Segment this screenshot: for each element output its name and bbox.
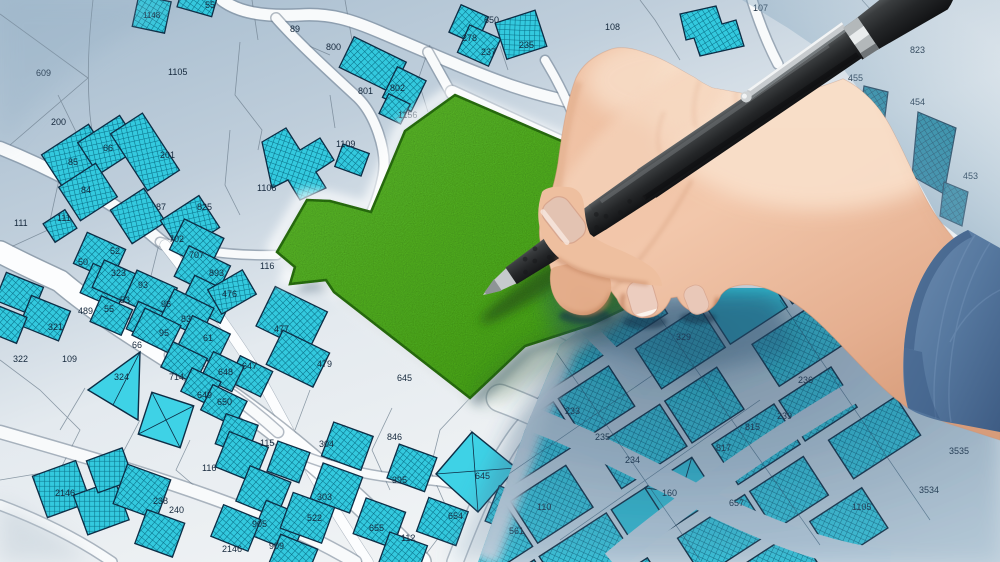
svg-text:83: 83: [181, 314, 191, 324]
svg-text:2146: 2146: [222, 544, 242, 554]
svg-text:96: 96: [161, 299, 171, 309]
svg-text:825: 825: [197, 202, 212, 212]
svg-text:476: 476: [222, 289, 237, 299]
svg-text:323: 323: [111, 268, 126, 278]
svg-text:802: 802: [390, 83, 405, 93]
svg-text:111: 111: [14, 218, 28, 228]
svg-text:321: 321: [48, 322, 63, 332]
svg-text:714: 714: [169, 372, 184, 382]
svg-text:109: 109: [62, 354, 77, 364]
svg-text:85: 85: [68, 157, 78, 167]
svg-text:201: 201: [160, 150, 175, 160]
svg-text:55: 55: [205, 0, 215, 10]
svg-text:93: 93: [138, 280, 148, 290]
svg-text:801: 801: [358, 86, 373, 96]
svg-text:112: 112: [401, 533, 415, 543]
svg-text:87: 87: [156, 202, 166, 212]
svg-text:645: 645: [397, 373, 412, 383]
svg-text:240: 240: [169, 505, 184, 515]
svg-text:489: 489: [78, 306, 93, 316]
svg-text:116: 116: [202, 463, 216, 473]
svg-text:66: 66: [132, 340, 142, 350]
svg-text:89: 89: [290, 24, 300, 34]
svg-text:893: 893: [209, 268, 224, 278]
svg-text:235: 235: [519, 40, 534, 50]
svg-text:655: 655: [369, 523, 384, 533]
svg-text:303: 303: [317, 492, 332, 502]
svg-text:707: 707: [189, 250, 204, 260]
svg-text:84: 84: [81, 185, 91, 195]
svg-text:648: 648: [218, 367, 233, 377]
svg-text:200: 200: [51, 117, 66, 127]
svg-text:702: 702: [169, 234, 184, 244]
svg-text:61: 61: [203, 333, 213, 343]
svg-text:2146: 2146: [55, 488, 75, 498]
svg-text:649: 649: [197, 390, 212, 400]
svg-text:278: 278: [462, 33, 477, 43]
svg-text:522: 522: [307, 513, 322, 523]
svg-text:909: 909: [269, 541, 284, 551]
svg-text:846: 846: [387, 432, 402, 442]
svg-text:479: 479: [317, 359, 332, 369]
svg-text:395: 395: [392, 475, 407, 485]
svg-text:115: 115: [260, 438, 274, 448]
svg-text:650: 650: [484, 15, 499, 25]
svg-text:322: 322: [13, 354, 28, 364]
svg-text:55: 55: [104, 304, 114, 314]
svg-text:53: 53: [120, 295, 130, 305]
svg-text:108: 108: [605, 22, 620, 32]
svg-text:238: 238: [153, 496, 168, 506]
svg-text:1106: 1106: [257, 183, 276, 193]
svg-text:304: 304: [319, 439, 334, 449]
svg-text:654: 654: [448, 511, 463, 521]
svg-text:66: 66: [103, 143, 113, 153]
svg-text:905: 905: [252, 519, 267, 529]
svg-text:477: 477: [274, 324, 289, 334]
svg-text:111: 111: [57, 213, 71, 223]
svg-text:800: 800: [326, 42, 341, 52]
svg-text:647: 647: [242, 361, 257, 371]
svg-text:95: 95: [159, 328, 169, 338]
svg-text:237: 237: [481, 47, 496, 57]
svg-text:50: 50: [78, 257, 88, 267]
svg-text:1109: 1109: [336, 139, 355, 149]
svg-text:1105: 1105: [168, 67, 187, 77]
svg-text:650: 650: [217, 397, 232, 407]
svg-text:116: 116: [260, 261, 274, 271]
svg-text:52: 52: [110, 246, 120, 256]
svg-text:324: 324: [114, 372, 129, 382]
